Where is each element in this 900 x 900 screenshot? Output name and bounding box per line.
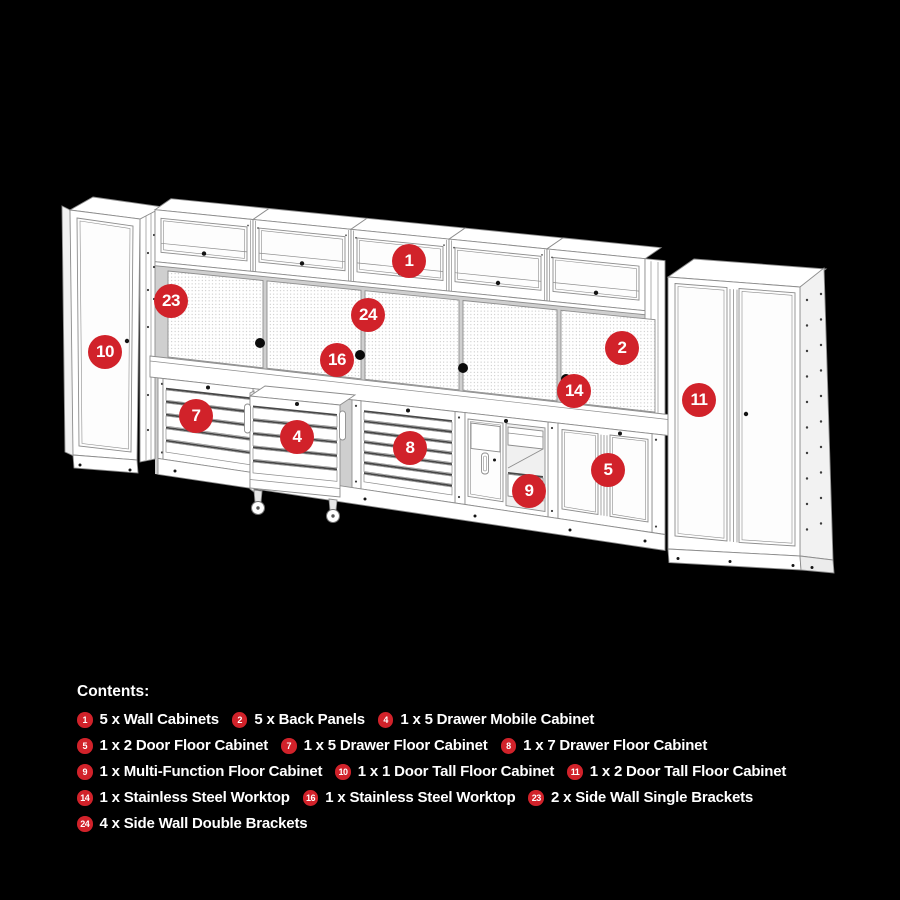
contents-badge-7: 7 [281, 738, 297, 754]
contents-row: 141 x Stainless Steel Worktop161 x Stain… [77, 790, 786, 806]
tall-cabinet-10-door [77, 218, 133, 452]
contents-item-text: 4 x Side Wall Double Brackets [100, 816, 308, 832]
left-upright [140, 210, 155, 462]
contents-row: 51 x 2 Door Floor Cabinet71 x 5 Drawer F… [77, 738, 786, 754]
contents-badge-14: 14 [77, 790, 93, 806]
cabinet-5-left-door [562, 430, 598, 515]
contents-badge-5: 5 [77, 738, 93, 754]
contents-badge-4: 4 [378, 712, 394, 728]
tall-cabinet-11-side [800, 268, 833, 560]
floor-post-1 [158, 378, 163, 459]
contents-row: 91 x Multi-Function Floor Cabinet101 x 1… [77, 764, 786, 780]
caster-fork-left [254, 490, 262, 502]
floor-post-6 [652, 434, 665, 535]
product-diagram-page: 1245789101114162324 Contents: 15 x Wall … [0, 0, 900, 900]
contents-item-text: 1 x Stainless Steel Worktop [100, 790, 290, 806]
contents-item: 232 x Side Wall Single Brackets [528, 790, 753, 806]
contents-item: 25 x Back Panels [232, 712, 365, 728]
contents-item-text: 1 x 1 Door Tall Floor Cabinet [358, 764, 554, 780]
contents-badge-11: 11 [567, 764, 583, 780]
contents-badge-24: 24 [77, 816, 93, 832]
cabinet-5-right-door [610, 435, 648, 522]
contents-badge-8: 8 [501, 738, 517, 754]
contents-item: 91 x Multi-Function Floor Cabinet [77, 764, 322, 780]
floor-post-3 [352, 400, 361, 489]
contents-item-text: 1 x 5 Drawer Mobile Cabinet [400, 712, 594, 728]
contents-item-text: 1 x Multi-Function Floor Cabinet [100, 764, 323, 780]
contents-item-text: 1 x 7 Drawer Floor Cabinet [523, 738, 707, 754]
caster-fork-right [329, 499, 337, 510]
contents-badge-1: 1 [77, 712, 93, 728]
tall-cabinet-11-right-door [739, 289, 795, 547]
contents-row: 244 x Side Wall Double Brackets [77, 816, 786, 832]
contents-item-text: 1 x 2 Door Floor Cabinet [100, 738, 269, 754]
contents-badge-10: 10 [335, 764, 351, 780]
contents-item-text: 5 x Wall Cabinets [100, 712, 219, 728]
mobile-cabinet-4-left-handle [245, 404, 251, 433]
contents-item: 101 x 1 Door Tall Floor Cabinet [335, 764, 554, 780]
contents-item: 51 x 2 Door Floor Cabinet [77, 738, 268, 754]
contents-item: 111 x 2 Door Tall Floor Cabinet [567, 764, 786, 780]
contents-badge-2: 2 [232, 712, 248, 728]
contents-item: 81 x 7 Drawer Floor Cabinet [501, 738, 708, 754]
contents-item-text: 1 x 5 Drawer Floor Cabinet [304, 738, 488, 754]
contents-rows: 15 x Wall Cabinets25 x Back Panels41 x 5… [77, 712, 786, 832]
contents-item: 41 x 5 Drawer Mobile Cabinet [378, 712, 594, 728]
contents-item-text: 2 x Side Wall Single Brackets [551, 790, 753, 806]
cabinet-9-door-window [471, 423, 500, 452]
mobile-cabinet-4-right-handle [340, 411, 346, 440]
contents-legend: Contents: 15 x Wall Cabinets25 x Back Pa… [77, 683, 786, 832]
contents-item-text: 1 x 2 Door Tall Floor Cabinet [590, 764, 786, 780]
contents-item: 71 x 5 Drawer Floor Cabinet [281, 738, 488, 754]
cabinet-9-shelf [508, 427, 543, 449]
contents-item-text: 1 x Stainless Steel Worktop [325, 790, 515, 806]
contents-item: 244 x Side Wall Double Brackets [77, 816, 307, 832]
contents-heading: Contents: [77, 683, 786, 701]
contents-badge-16: 16 [303, 790, 319, 806]
contents-item-text: 5 x Back Panels [254, 712, 364, 728]
contents-badge-23: 23 [528, 790, 544, 806]
floor-post-4 [455, 412, 465, 505]
contents-row: 15 x Wall Cabinets25 x Back Panels41 x 5… [77, 712, 786, 728]
contents-item: 141 x Stainless Steel Worktop [77, 790, 290, 806]
contents-item: 161 x Stainless Steel Worktop [303, 790, 516, 806]
tall-cabinet-11-left-door [675, 284, 727, 542]
cabinet-9-drawer [508, 474, 543, 501]
floor-post-5 [548, 422, 558, 519]
contents-badge-9: 9 [77, 764, 93, 780]
contents-item: 15 x Wall Cabinets [77, 712, 219, 728]
